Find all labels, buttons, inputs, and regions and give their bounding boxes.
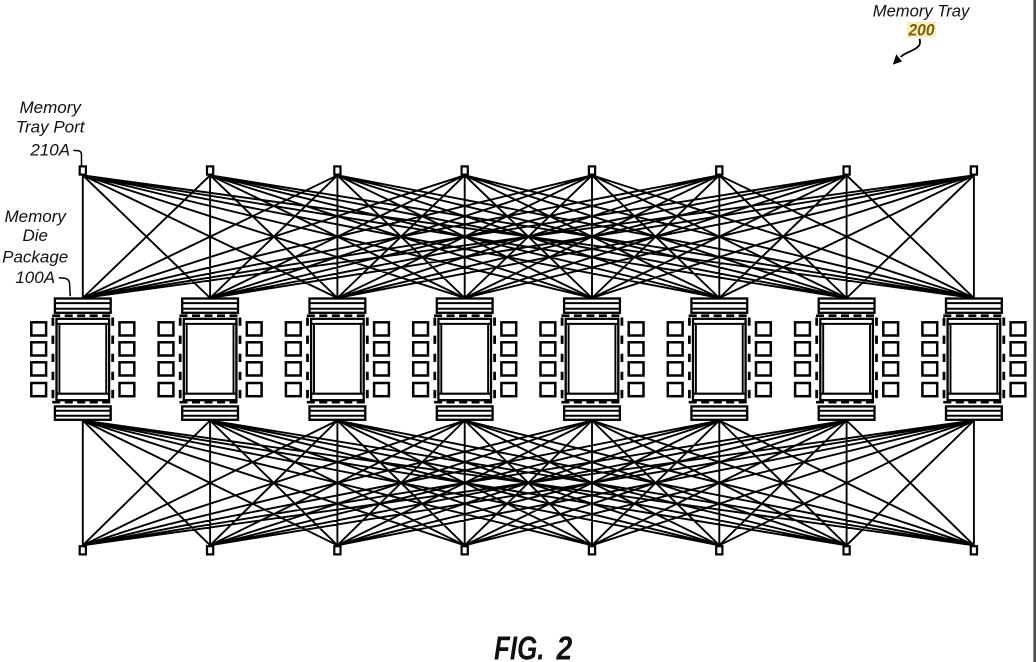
- svg-text:Package: Package: [2, 248, 68, 267]
- svg-text:FIG.: FIG.: [494, 630, 545, 662]
- svg-text:210A: 210A: [29, 140, 70, 159]
- svg-text:Memory Tray: Memory Tray: [873, 1, 971, 20]
- svg-text:Die: Die: [22, 226, 48, 245]
- svg-text:200: 200: [908, 21, 935, 40]
- svg-text:2: 2: [556, 630, 573, 662]
- svg-text:Memory: Memory: [19, 98, 82, 117]
- svg-text:Tray Port: Tray Port: [16, 118, 86, 137]
- svg-text:100A: 100A: [15, 268, 55, 287]
- svg-text:Memory: Memory: [4, 207, 67, 226]
